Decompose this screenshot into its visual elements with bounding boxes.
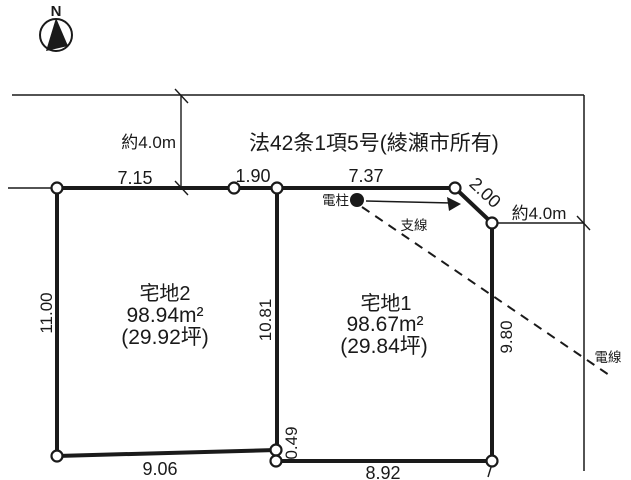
parcel2-area: 98.94m² — [126, 304, 203, 327]
road-designation-label: 法42条1項5号(綾瀬市所有) — [249, 132, 499, 155]
parcel1-area-tsubo: (29.84坪) — [340, 335, 428, 358]
dim-p1-top: 7.37 — [348, 166, 383, 186]
parcel1-area: 98.67m² — [346, 313, 423, 336]
vertex-marker — [450, 183, 461, 194]
vertex-marker — [52, 451, 63, 462]
power-line-label: 電線 — [595, 350, 623, 365]
dim-p1-right: 9.80 — [497, 320, 516, 353]
guy-wire-label: 支線 — [401, 218, 428, 233]
road-right-width-label: 約4.0m — [512, 204, 567, 223]
parcel2-bottom-edge — [57, 450, 276, 456]
utility-pole-icon — [350, 193, 364, 207]
north-label: N — [51, 3, 62, 20]
pole-label: 電柱 — [322, 193, 349, 208]
site-plan-diagram: N — [0, 0, 631, 480]
dim-p2-right: 10.81 — [256, 299, 275, 342]
dim-p2-left: 11.00 — [37, 292, 56, 333]
dim-p2-top: 7.15 — [117, 168, 152, 188]
north-needle-icon — [46, 18, 68, 51]
vertex-marker — [271, 456, 282, 467]
dim-top-middle: 1.90 — [235, 166, 270, 186]
parcel2-name: 宅地2 — [139, 282, 190, 305]
road-top-width-label: 約4.0m — [121, 133, 176, 152]
vertex-marker — [487, 456, 498, 467]
site-plan-svg: N — [0, 0, 631, 480]
vertex-marker — [272, 183, 283, 194]
dim-step: 0.49 — [282, 426, 301, 459]
parcel1-info: 宅地1 98.67m² (29.84坪) — [340, 292, 428, 358]
parcel1-name: 宅地1 — [360, 292, 411, 315]
parcel2-info: 宅地2 98.94m² (29.92坪) — [121, 282, 209, 349]
dim-p2-bottom: 9.06 — [142, 459, 177, 479]
parcel2-area-tsubo: (29.92坪) — [121, 326, 209, 349]
pole-pointer-line — [366, 201, 452, 203]
utility-pole-group — [350, 193, 461, 211]
vertex-marker — [271, 445, 282, 456]
dim-p1-bottom: 8.92 — [365, 463, 400, 480]
compass: N — [40, 3, 72, 51]
vertex-marker — [52, 183, 63, 194]
vertex-marker — [487, 218, 498, 229]
pole-pointer-arrowhead-icon — [447, 197, 461, 211]
